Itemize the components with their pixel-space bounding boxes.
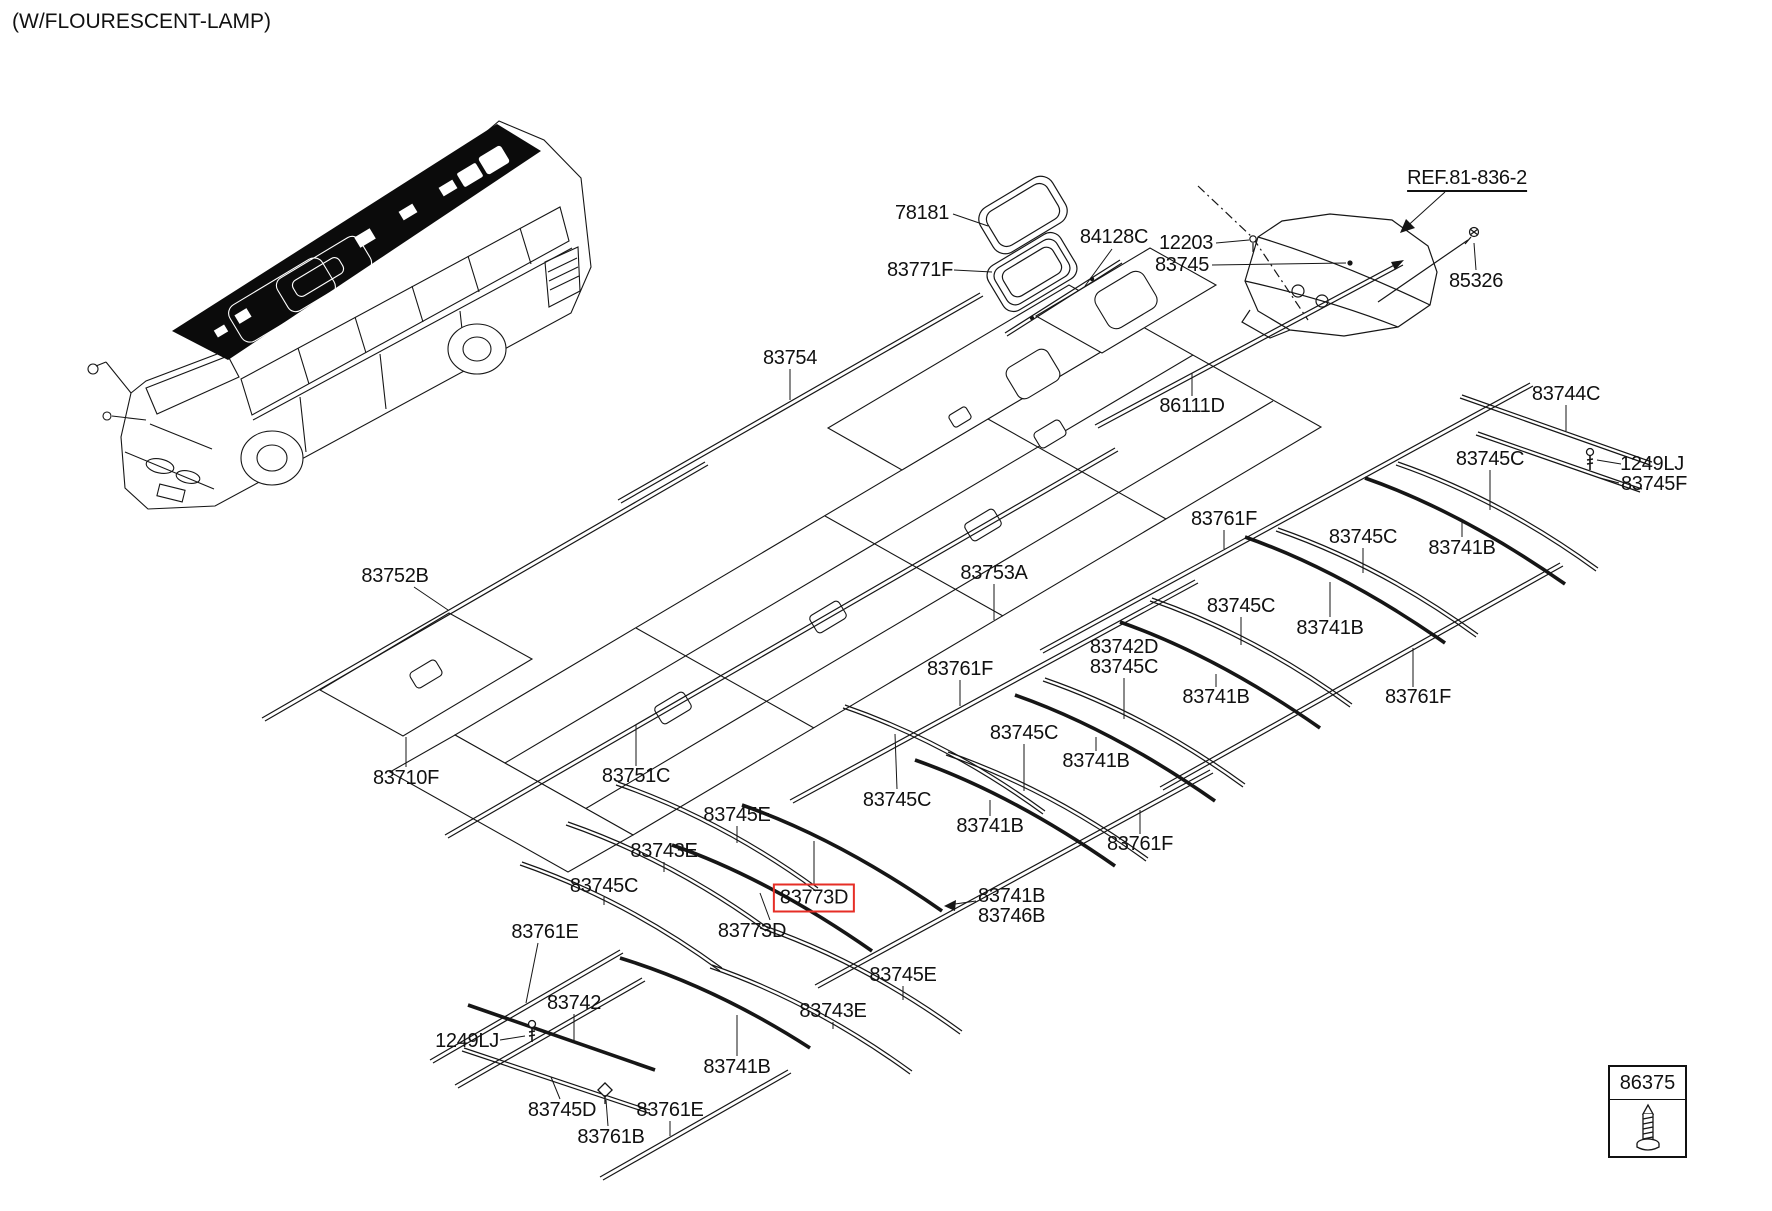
part-label-83743E-b: 83743E [799, 1001, 866, 1021]
part-label-83745E-b: 83745E [869, 965, 936, 985]
part-label-83741B-f: 83741B [978, 886, 1045, 906]
part-label-83742D: 83742D [1090, 637, 1158, 657]
part-label-83745: 83745 [1155, 255, 1209, 275]
part-label-83751C: 83751C [602, 766, 670, 786]
part-label-1249LJ-a: 1249LJ [1620, 454, 1684, 474]
part-label-83745C-f: 83745C [863, 790, 931, 810]
part-label-83745C-e: 83745C [990, 723, 1058, 743]
part-label-83745C-c: 83745C [1207, 596, 1275, 616]
part-label-83761F-d: 83761F [1107, 834, 1173, 854]
part-label-83741B-g: 83741B [703, 1057, 770, 1077]
part-label-83745C-d: 83745C [1090, 657, 1158, 677]
part-label-78181: 78181 [895, 203, 949, 223]
part-labels: 7818183771F84128C1220383745REF.81-836-28… [0, 0, 1772, 1211]
part-label-83761F-b: 83761F [927, 659, 993, 679]
part-label-85326: 85326 [1449, 271, 1503, 291]
legend-part-number: 86375 [1610, 1067, 1685, 1100]
part-label-1249LJ-b: 1249LJ [435, 1031, 499, 1051]
part-label-83761F-a: 83761F [1191, 509, 1257, 529]
part-label-83741B-e: 83741B [956, 816, 1023, 836]
part-label-83710F: 83710F [373, 768, 439, 788]
part-label-83754: 83754 [763, 348, 817, 368]
part-label-83753A: 83753A [960, 563, 1027, 583]
parts-diagram-page: (W/FLOURESCENT-LAMP) 7818183771F84128C12… [0, 0, 1772, 1211]
part-label-83773D: 83773D [718, 921, 786, 941]
part-label-83761F-c: 83761F [1385, 687, 1451, 707]
screw-icon [1628, 1102, 1668, 1154]
part-label-86111D: 86111D [1159, 396, 1224, 416]
part-label-83752B: 83752B [361, 566, 428, 586]
legend-box: 86375 [1608, 1065, 1687, 1158]
part-label-83742: 83742 [547, 993, 601, 1013]
part-label-12203: 12203 [1159, 233, 1213, 253]
part-label-83744C: 83744C [1532, 384, 1600, 404]
part-label-83741B-d: 83741B [1062, 751, 1129, 771]
part-label-83745E-a: 83745E [703, 805, 770, 825]
part-label-83761B: 83761B [577, 1127, 644, 1147]
part-label-83741B-c: 83741B [1182, 687, 1249, 707]
part-label-83745C-g: 83745C [570, 876, 638, 896]
part-label-83745C-a: 83745C [1456, 449, 1524, 469]
part-label-83743E-a: 83743E [630, 841, 697, 861]
part-label-83746B: 83746B [978, 906, 1045, 926]
part-label-83761E-b: 83761E [636, 1100, 703, 1120]
part-label-83773D-highlight: 83773D [773, 884, 855, 913]
legend-screw-cell [1610, 1100, 1685, 1156]
part-label-83761E-a: 83761E [511, 922, 578, 942]
part-label-83745C-b: 83745C [1329, 527, 1397, 547]
part-label-83741B-a: 83741B [1428, 538, 1495, 558]
part-label-84128C: 84128C [1080, 227, 1148, 247]
part-label-ref-81-836-2: REF.81-836-2 [1407, 168, 1527, 192]
part-label-83745F: 83745F [1621, 474, 1687, 494]
part-label-83771F: 83771F [887, 260, 953, 280]
part-label-83745D: 83745D [528, 1100, 596, 1120]
part-label-83741B-b: 83741B [1296, 618, 1363, 638]
